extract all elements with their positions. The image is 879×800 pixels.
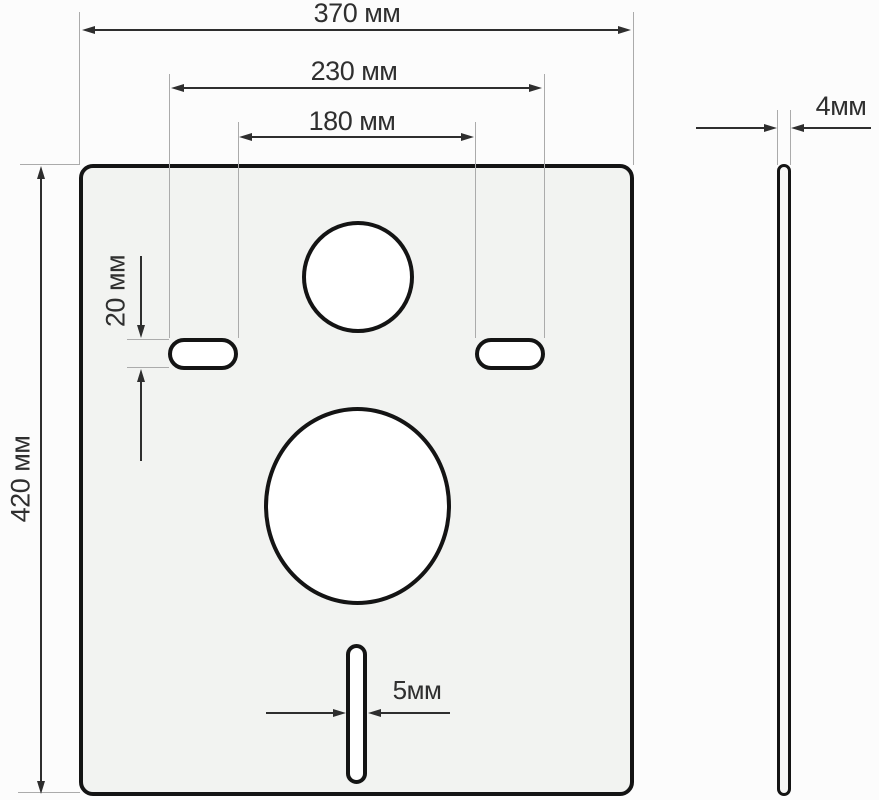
- tick-line-20-top: [127, 339, 169, 340]
- tick-line-420-top: [20, 164, 80, 165]
- left-mount-slot-hole: [168, 338, 238, 370]
- arrowhead-up-icon: [37, 166, 45, 179]
- dim-line-5-left: [266, 712, 334, 714]
- extension-line-370-left: [79, 12, 80, 165]
- arrowhead-left-icon: [82, 26, 95, 34]
- dim-line-4-left: [696, 127, 765, 129]
- extension-line-4-left: [777, 110, 778, 165]
- tick-line-420-bottom: [18, 792, 80, 793]
- dim-line-5-right: [380, 712, 450, 714]
- arrowhead-right-icon: [764, 124, 777, 132]
- dim-label-slots-inner-span: 180 мм: [309, 108, 396, 135]
- dim-label-plate-width: 370 мм: [314, 0, 401, 27]
- bottom-slot-hole: [346, 644, 367, 784]
- dim-line-370: [94, 29, 619, 31]
- arrowhead-down-icon: [37, 781, 45, 794]
- extension-line-180-left: [238, 122, 239, 338]
- dim-line-20-upper: [140, 256, 142, 326]
- dim-label-slots-outer-span: 230 мм: [311, 58, 398, 85]
- arrowhead-right-icon: [461, 133, 474, 141]
- extension-line-230-right: [544, 74, 545, 338]
- tick-line-20-bottom: [127, 367, 169, 368]
- technical-drawing: 370 мм 230 мм 180 мм 420 мм 20 мм 5мм 4м…: [0, 0, 879, 800]
- dim-line-420: [40, 178, 42, 782]
- right-mount-slot-hole: [475, 338, 545, 370]
- top-circle-hole: [302, 221, 414, 333]
- dim-label-plate-height: 420 мм: [8, 436, 35, 523]
- extension-line-370-right: [633, 12, 634, 165]
- dim-line-230: [183, 87, 530, 89]
- plate-side-view: [777, 164, 791, 796]
- arrowhead-left-icon: [171, 84, 184, 92]
- arrowhead-right-icon: [333, 709, 346, 717]
- extension-line-180-right: [475, 122, 476, 338]
- dim-line-4-right: [803, 127, 871, 129]
- dim-label-plate-thickness: 4мм: [816, 93, 867, 120]
- arrowhead-right-icon: [529, 84, 542, 92]
- extension-line-230-left: [169, 74, 170, 338]
- dim-label-mount-slot-height: 20 мм: [103, 255, 130, 327]
- arrowhead-right-icon: [618, 26, 631, 34]
- dim-label-bottom-slot-width: 5мм: [393, 677, 442, 703]
- arrowhead-left-icon: [239, 133, 252, 141]
- dim-line-180: [251, 136, 462, 138]
- extension-line-4-right: [790, 110, 791, 165]
- dim-line-20-lower: [140, 381, 142, 461]
- large-circle-hole: [264, 407, 451, 605]
- arrowhead-down-icon: [137, 325, 145, 338]
